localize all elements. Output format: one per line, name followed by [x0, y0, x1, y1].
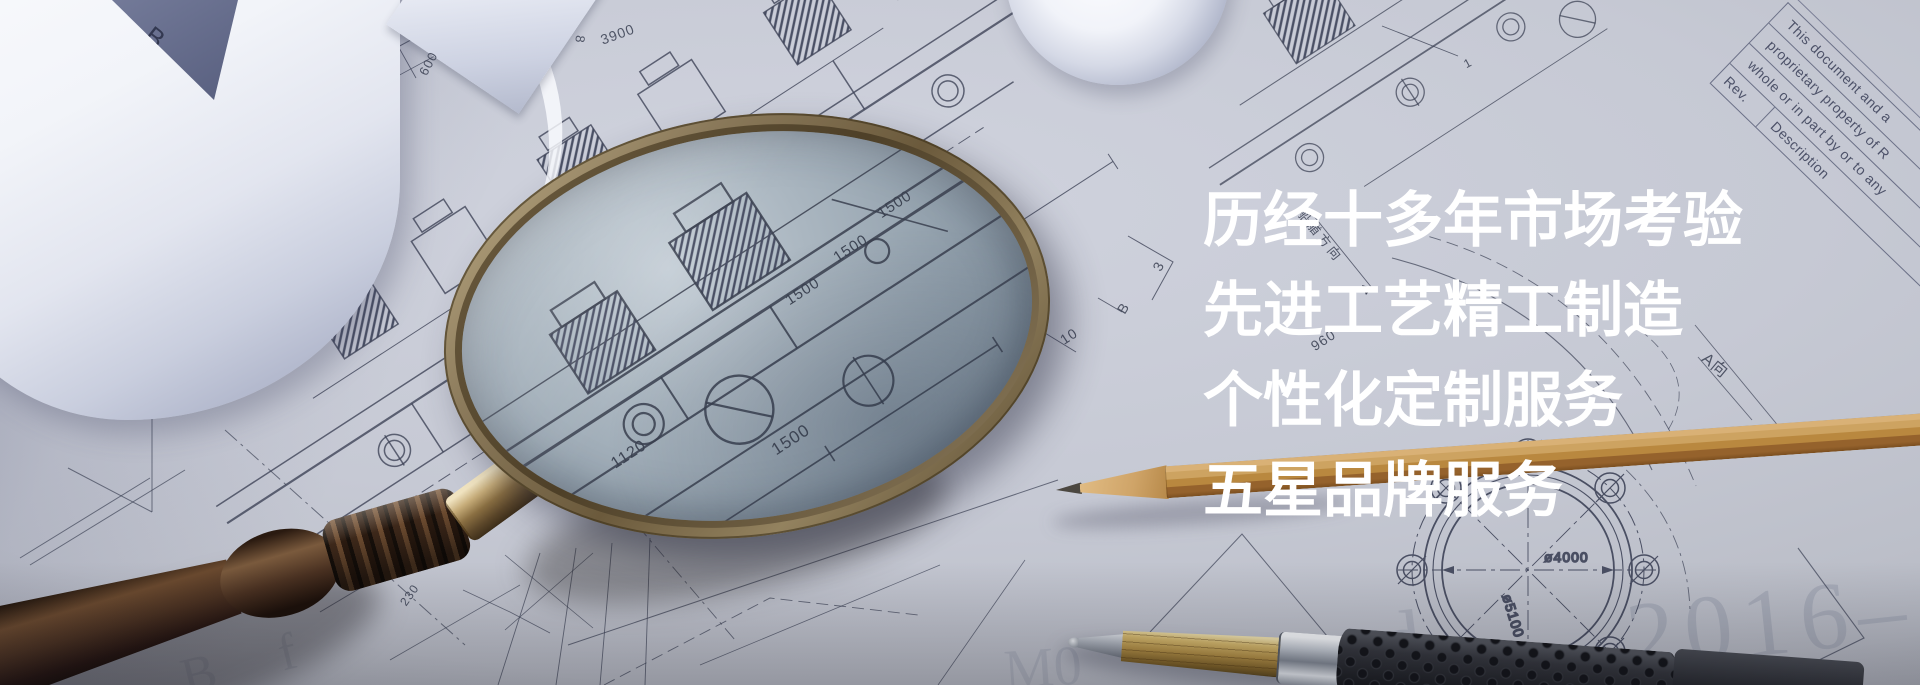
pen-rubber-grip: [1335, 628, 1679, 685]
headline-line-2: 先进工艺精工制造: [1203, 266, 1743, 356]
headline-line-4: 五星品牌服务: [1203, 446, 1743, 536]
dim-4000-label: ø4000: [1544, 549, 1589, 565]
headline-line-1: 历经十多年市场考验: [1203, 176, 1743, 266]
headline-line-3: 个性化定制服务: [1203, 356, 1743, 446]
hero-headline: 历经十多年市场考验 先进工艺精工制造 个性化定制服务 五星品牌服务: [1203, 176, 1743, 536]
hero-banner: B f M0 od 2016–: [0, 0, 1920, 685]
pen-brass-section: [1120, 626, 1282, 678]
pencil-lead: [1056, 482, 1083, 496]
pencil-sharpened-cone: [1079, 465, 1169, 505]
pen-tip-cone: [1077, 631, 1125, 658]
pen-barrel: [1669, 648, 1865, 685]
dim-8: 8: [572, 35, 588, 45]
